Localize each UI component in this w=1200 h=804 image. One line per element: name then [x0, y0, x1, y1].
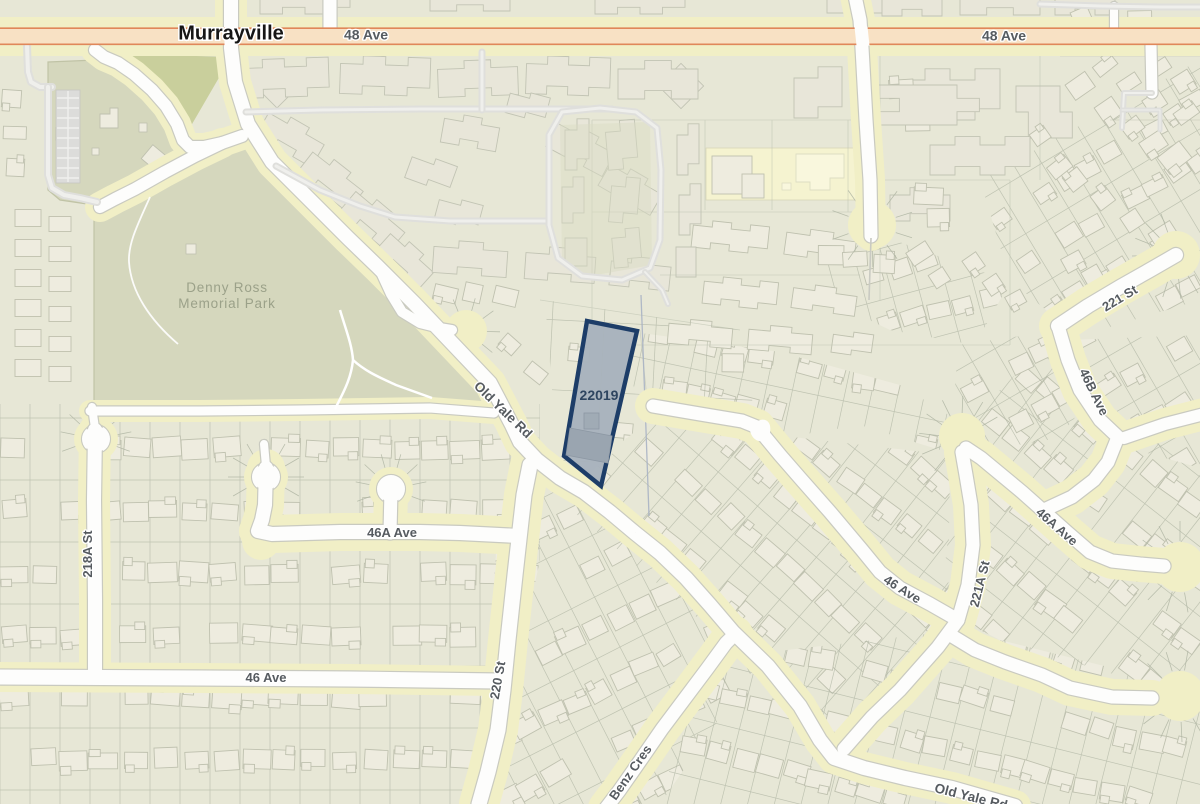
svg-text:48 Ave: 48 Ave — [982, 28, 1026, 44]
svg-text:Murrayville: Murrayville — [178, 23, 284, 45]
svg-text:Memorial Park: Memorial Park — [178, 296, 275, 311]
svg-text:46 Ave: 46 Ave — [246, 670, 287, 685]
svg-text:46A Ave: 46A Ave — [367, 525, 417, 540]
svg-text:48 Ave: 48 Ave — [344, 27, 388, 43]
svg-text:218A St: 218A St — [80, 530, 95, 578]
svg-text:22019: 22019 — [580, 387, 619, 403]
svg-text:Denny Ross: Denny Ross — [186, 280, 268, 295]
